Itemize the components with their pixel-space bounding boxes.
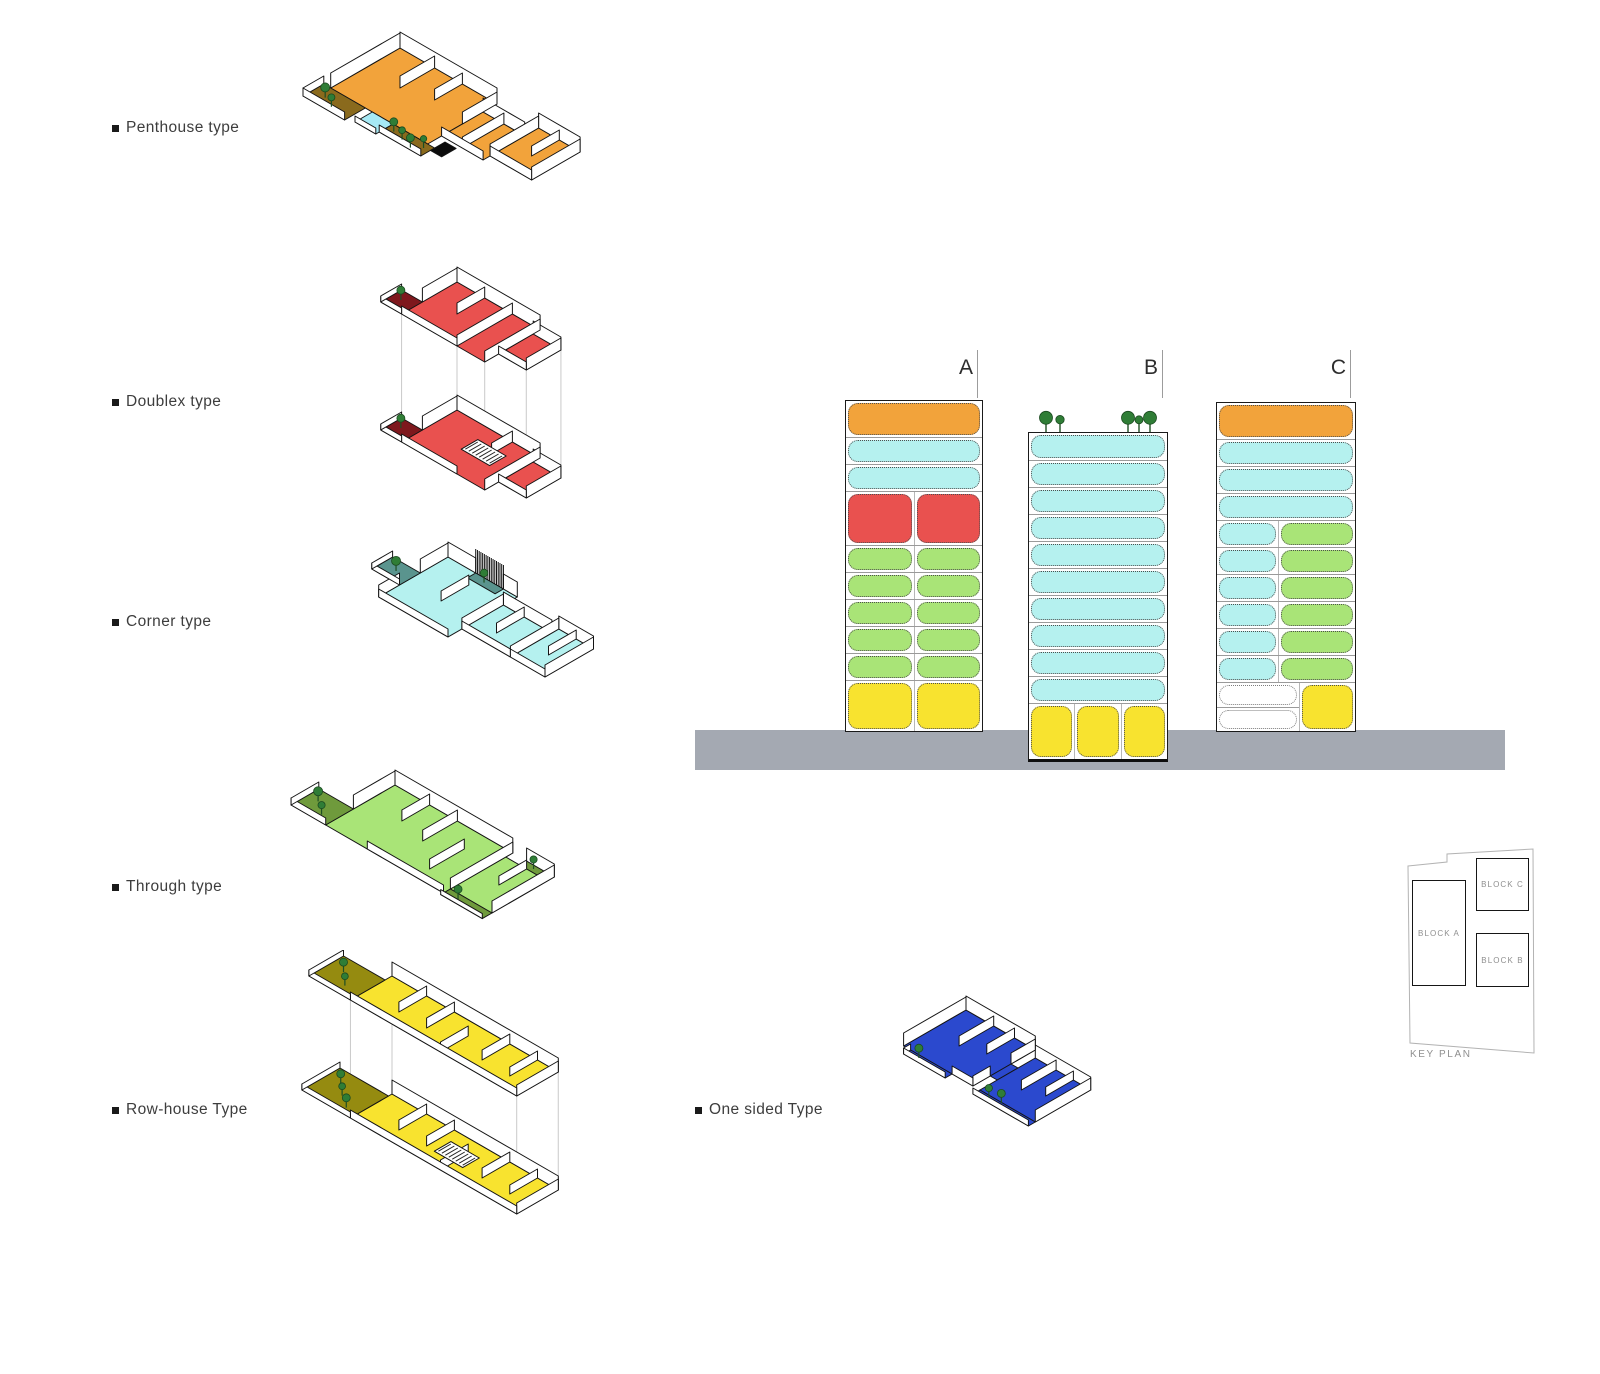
unit-band [848,575,912,597]
unit-band [848,440,980,462]
unit-band [1031,544,1165,566]
floor-row [1217,682,1355,731]
unit-band [1281,577,1353,599]
unit-band [1219,523,1276,545]
unit-band [848,683,912,729]
floor-row [846,437,982,464]
unit-band [848,467,980,489]
unit-band [1281,604,1353,626]
unit-band [848,656,912,678]
unit-band [1219,550,1276,572]
floor-row [1029,460,1167,487]
tree-icon [1122,411,1135,432]
legend-doublex-type: Doublex type [112,393,221,411]
floor-row [1029,514,1167,541]
block-c-label: BLOCK C [1481,880,1524,889]
floor-row [1029,649,1167,676]
square-bullet-icon [112,399,119,406]
onesided-isometric-plan [878,976,1148,1166]
penthouse-isometric-plan [295,18,635,218]
unit-band [1031,490,1165,512]
unit-band [1124,706,1165,757]
floor-row [1029,487,1167,514]
key-plan: BLOCK A BLOCK C BLOCK B KEY PLAN [1375,845,1545,1070]
legend-label: One sided Type [709,1101,823,1119]
unit-band [1031,706,1072,757]
legend-label: Penthouse type [126,119,239,137]
legend-label: Doublex type [126,393,221,411]
floor-row [1217,547,1355,574]
unit-band [848,602,912,624]
unit-band [848,629,912,651]
floor-row [1029,622,1167,649]
tree-icon [1144,411,1157,432]
unit-band [1031,435,1165,458]
floor-row [1217,493,1355,520]
unit-band [917,683,981,729]
keyplan-title: KEY PLAN [1410,1049,1472,1060]
block-b-label: BLOCK B [1481,956,1523,965]
unit-band [1219,469,1353,491]
floor-row [1029,676,1167,703]
floor-row [1029,541,1167,568]
unit-band [917,602,981,624]
tower-label-a: A [943,356,973,380]
legend-through-type: Through type [112,878,222,896]
unit-band [1281,523,1353,545]
doublex-isometric-plan [365,246,625,508]
unit-band [917,656,981,678]
square-bullet-icon [112,125,119,132]
unit-band [1281,658,1353,680]
floor-row [1217,628,1355,655]
unit-band [1031,652,1165,674]
unit-band [917,629,981,651]
floor-row [1217,574,1355,601]
unit-band [917,575,981,597]
unit-band [1031,625,1165,647]
floor-row [846,626,982,653]
elevation-tower-b [1028,432,1168,762]
floor-row [846,401,982,437]
keyplan-block-a: BLOCK A [1412,880,1466,986]
unit-band [1031,517,1165,539]
unit-types-diagram: Penthouse type Doublex type Corner type … [0,0,1600,1374]
keyplan-block-b: BLOCK B [1476,933,1529,987]
tower-label-tick [1350,350,1351,398]
unit-band [1219,496,1353,518]
floor-row [1217,520,1355,547]
floor-row [846,680,982,731]
unit-band [1077,706,1118,757]
unit-band [1281,550,1353,572]
floor-row [1217,601,1355,628]
unit-band [1281,631,1353,653]
legend-penthouse-type: Penthouse type [112,119,239,137]
unit-band [1031,598,1165,620]
unit-band [848,548,912,570]
legend-rowhouse-type: Row-house Type [112,1101,248,1119]
floor-row [1217,439,1355,466]
square-bullet-icon [695,1107,702,1114]
floor-row [1217,403,1355,439]
legend-corner-type: Corner type [112,613,211,631]
unit-band [917,548,981,570]
tower-label-b: B [1128,356,1158,380]
legend-label: Corner type [126,613,211,631]
tower-label-c: C [1316,356,1346,380]
unit-band [1219,658,1276,680]
floor-row [846,599,982,626]
elevation-tower-a [845,400,983,732]
tower-label-tick [1162,350,1163,398]
floor-row [1029,433,1167,460]
floor-row [1217,655,1355,682]
through-isometric-plan [283,745,598,963]
unit-band [848,494,912,543]
unit-band [1031,679,1165,701]
floor-row [1029,703,1167,759]
tower-label-tick [977,350,978,398]
unit-band [1219,577,1276,599]
corner-isometric-plan [340,505,635,720]
unit-band [1302,685,1353,729]
legend-label: Through type [126,878,222,896]
tree-icon [1135,416,1143,432]
legend-onesided-type: One sided Type [695,1101,823,1119]
floor-row [846,653,982,680]
tree-icon [1040,411,1053,432]
unit-band [1219,604,1276,626]
unit-band [848,403,980,435]
unit-band [1031,571,1165,593]
unit-band [1219,405,1353,437]
block-a-label: BLOCK A [1418,929,1460,938]
floor-row [1029,568,1167,595]
square-bullet-icon [112,619,119,626]
floor-row [846,572,982,599]
elevation-tower-c [1216,402,1356,732]
unit-band [1219,685,1297,705]
unit-band [1031,463,1165,485]
legend-label: Row-house Type [126,1101,248,1119]
floor-row [1217,466,1355,493]
keyplan-block-c: BLOCK C [1476,858,1529,911]
unit-band [1219,710,1297,730]
floor-row [1029,595,1167,622]
unit-band [917,494,981,543]
unit-band [1219,631,1276,653]
square-bullet-icon [112,884,119,891]
roof-trees [1028,392,1168,432]
floor-row [846,545,982,572]
unit-band [1219,442,1353,464]
floor-row [846,491,982,545]
tree-icon [1056,415,1064,432]
floor-row [846,464,982,491]
rowhouse-isometric-plan [288,950,598,1222]
square-bullet-icon [112,1107,119,1114]
